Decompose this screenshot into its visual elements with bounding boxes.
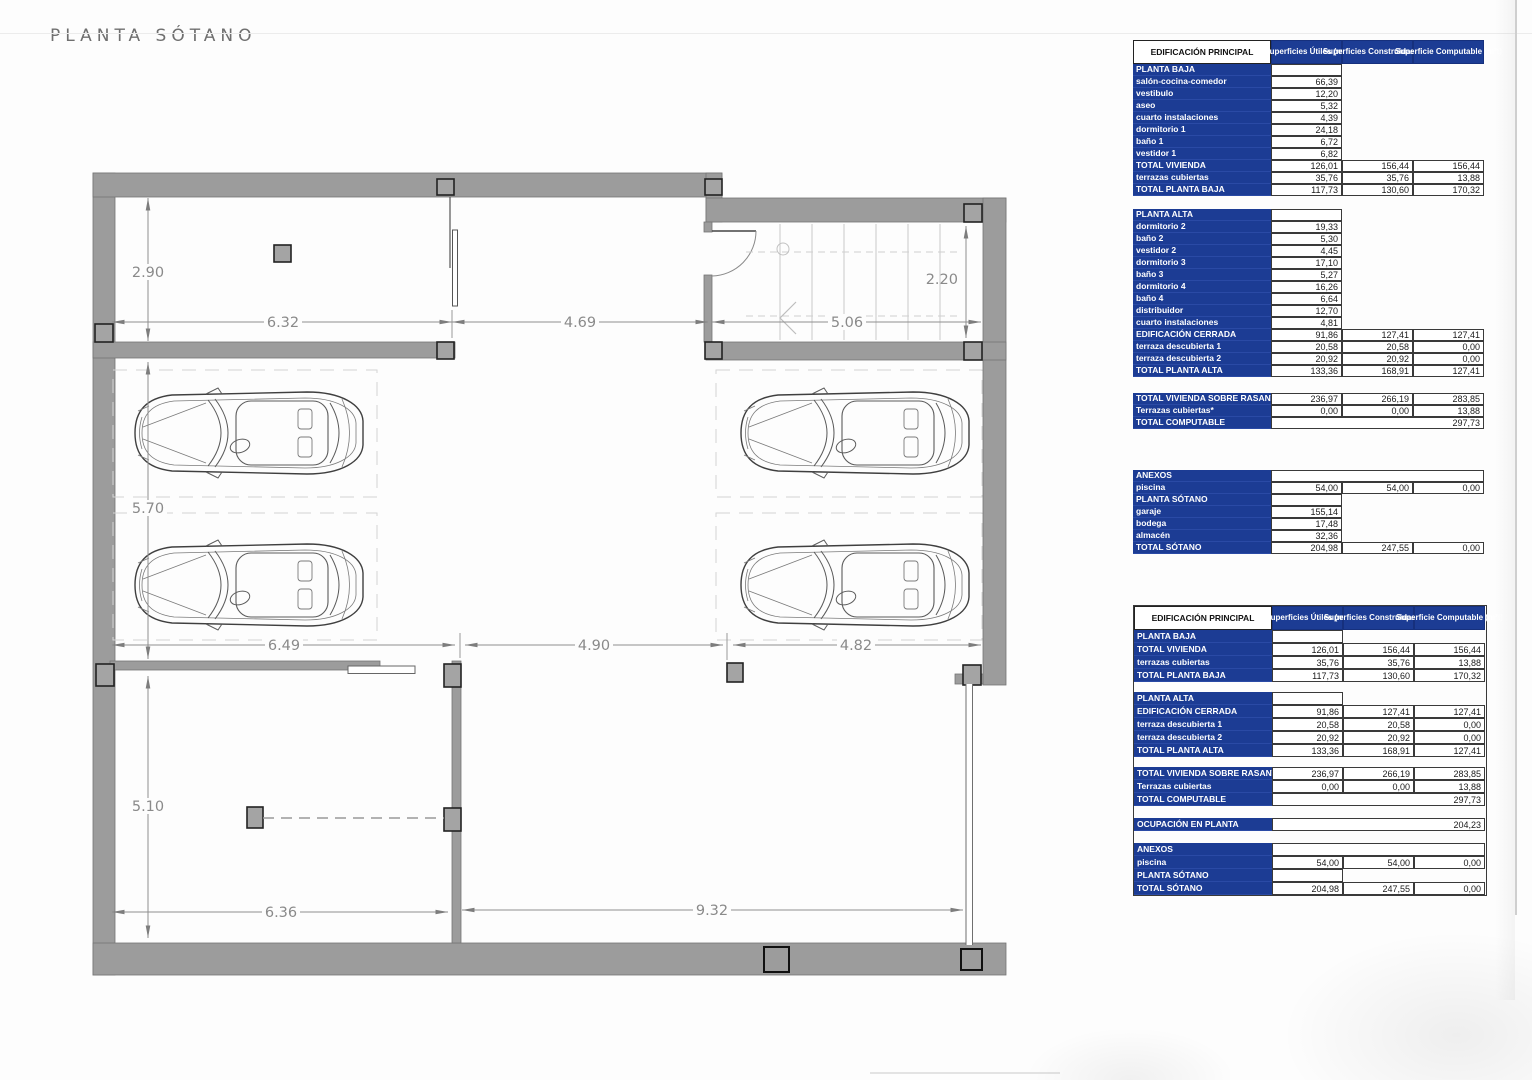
column [705, 342, 722, 359]
row-label: vestibulo [1133, 88, 1271, 100]
row-label: TOTAL SÓTANO [1133, 542, 1271, 554]
row-label: TOTAL PLANTA BAJA [1134, 669, 1272, 682]
table-cell: 20,92 [1272, 731, 1343, 744]
column [964, 342, 982, 360]
column [727, 663, 743, 682]
table-row: TOTAL PLANTA ALTA133,36168,91127,41 [1134, 744, 1486, 757]
car-icon [741, 540, 969, 630]
table-cell: 13,88 [1413, 172, 1484, 184]
row-label: dormitorio 1 [1133, 124, 1271, 136]
row-label: TOTAL PLANTA ALTA [1134, 744, 1272, 757]
row-label: TOTAL VIVIENDA SOBRE RASANTE [1133, 393, 1271, 405]
table-cell [1413, 317, 1484, 329]
row-label: PLANTA BAJA [1133, 64, 1271, 76]
row-label: TOTAL PLANTA ALTA [1133, 365, 1271, 377]
table-cell: 127,41 [1413, 365, 1484, 377]
dim-upper-height: 2.90 [129, 198, 167, 341]
table-cell: 13,88 [1413, 405, 1484, 417]
table-header-row: EDIFICACIÓN PRINCIPALSuperficies Útiles … [1134, 606, 1486, 630]
table-cell [1342, 257, 1413, 269]
table-cell: 5,27 [1271, 269, 1342, 281]
table-row: TOTAL VIVIENDA SOBRE RASANTE236,97266,19… [1134, 767, 1486, 780]
row-label: baño 1 [1133, 136, 1271, 148]
cars [135, 388, 969, 630]
table-cell [1342, 76, 1413, 88]
svg-text:4.69: 4.69 [564, 315, 596, 331]
table-cell [1272, 843, 1485, 856]
table-cell: 32,36 [1271, 530, 1342, 542]
dimension-ticks [452, 310, 727, 660]
column [705, 179, 722, 195]
table-row: baño 46,64 [1133, 293, 1485, 305]
column [96, 664, 114, 686]
svg-text:6.36: 6.36 [265, 905, 297, 921]
table-row: baño 16,72 [1133, 136, 1485, 148]
table-row: EDIFICACIÓN CERRADA91,86127,41127,41 [1133, 329, 1485, 341]
page-edge-line [1515, 0, 1517, 915]
svg-text:6.32: 6.32 [267, 315, 299, 331]
table-cell: 24,18 [1271, 124, 1342, 136]
table-cell: 54,00 [1343, 856, 1414, 869]
table-cell: 13,88 [1414, 780, 1485, 793]
table-cell: 130,60 [1343, 669, 1414, 682]
table-row: garaje155,14 [1133, 506, 1485, 518]
column [963, 665, 981, 685]
table-cell: 20,58 [1272, 718, 1343, 731]
table-cell: 5,32 [1271, 100, 1342, 112]
table-row: dormitorio 219,33 [1133, 221, 1485, 233]
row-label: PLANTA SÓTANO [1134, 869, 1272, 882]
table-cell [1342, 124, 1413, 136]
table-cell: 127,41 [1414, 705, 1485, 718]
table-row: terraza descubierta 220,9220,920,00 [1133, 353, 1485, 365]
table-cell: 17,10 [1271, 257, 1342, 269]
row-label: EDIFICACIÓN CERRADA [1133, 329, 1271, 341]
table-row: bodega17,48 [1133, 518, 1485, 530]
table-cell: 156,44 [1343, 643, 1414, 656]
dim-top-mid: 4.69 [452, 314, 708, 331]
row-label: dormitorio 2 [1133, 221, 1271, 233]
table-spacer [1133, 377, 1485, 393]
row-label: terrazas cubiertas [1133, 172, 1271, 184]
table-cell [1342, 112, 1413, 124]
table-row: PLANTA ALTA [1133, 209, 1485, 221]
table-row: cuarto instalaciones4,39 [1133, 112, 1485, 124]
row-label: terraza descubierta 1 [1133, 341, 1271, 353]
table-cell: 4,81 [1271, 317, 1342, 329]
table-cell [1342, 269, 1413, 281]
table-row: Terrazas cubiertas*0,000,0013,88 [1133, 405, 1485, 417]
table-cell [1272, 692, 1343, 705]
column [764, 947, 789, 972]
table-cell: 127,41 [1343, 705, 1414, 718]
svg-text:5.70: 5.70 [132, 501, 164, 517]
table-cell [1413, 124, 1484, 136]
table-row: vestidor 16,82 [1133, 148, 1485, 160]
table-cell [1271, 494, 1342, 506]
table-cell: 236,97 [1271, 393, 1342, 405]
row-label: ANEXOS [1133, 470, 1271, 482]
table-cell [1414, 692, 1485, 705]
table-row: PLANTA BAJA [1134, 630, 1486, 643]
row-label: aseo [1133, 100, 1271, 112]
stair-direction-arrow [780, 302, 796, 334]
row-label: baño 3 [1133, 269, 1271, 281]
row-label: dormitorio 3 [1133, 257, 1271, 269]
table-cell: 35,76 [1271, 172, 1342, 184]
row-label: cuarto instalaciones [1133, 317, 1271, 329]
table-cell: 20,58 [1343, 718, 1414, 731]
wall-garage-bottom [110, 661, 380, 670]
table-spacer [1134, 831, 1486, 843]
table-cell [1271, 64, 1342, 76]
table-row: OCUPACIÓN EN PLANTA204,23 [1134, 818, 1486, 831]
table-cell: 127,41 [1413, 329, 1484, 341]
dim-stair-height: 2.20 [926, 226, 966, 338]
table-cell: 126,01 [1272, 643, 1343, 656]
surface-summary-table: EDIFICACIÓN PRINCIPALSuperficies Útiles … [1133, 605, 1487, 896]
handrail-post [777, 243, 789, 255]
row-label: baño 2 [1133, 233, 1271, 245]
table-cell [1413, 88, 1484, 100]
table-cell: 54,00 [1271, 482, 1342, 494]
wall-right [983, 198, 1006, 685]
table-cell: 0,00 [1413, 482, 1484, 494]
table-row: terraza descubierta 220,9220,920,00 [1134, 731, 1486, 744]
table-cell [1342, 305, 1413, 317]
table-row: distribuidor12,70 [1133, 305, 1485, 317]
wall-top [93, 173, 722, 197]
column-header: Superficie Computable (m²t) [1414, 606, 1485, 630]
table-row: TOTAL SÓTANO204,98247,550,00 [1134, 882, 1486, 895]
row-label: vestidor 1 [1133, 148, 1271, 160]
surface-detail-table: EDIFICACIÓN PRINCIPALSuperficies Útiles … [1133, 40, 1485, 554]
table-cell: 66,39 [1271, 76, 1342, 88]
row-label: terraza descubierta 2 [1134, 731, 1272, 744]
column [437, 342, 454, 359]
row-label: TOTAL COMPUTABLE [1133, 417, 1271, 429]
wall-stair-bottom [706, 342, 1006, 360]
table-cell [1342, 494, 1413, 506]
table-cell [1413, 518, 1484, 530]
column-header: Superficie Computable (m²t) [1413, 40, 1484, 64]
table-cell: 236,97 [1272, 767, 1343, 780]
table-cell [1413, 136, 1484, 148]
table-cell [1342, 281, 1413, 293]
column [444, 664, 461, 687]
dim-bottom-left: 6.36 [112, 904, 448, 921]
table-row: TOTAL SÓTANO204,98247,550,00 [1133, 542, 1485, 554]
wall-stair-left-a [704, 222, 712, 232]
row-label: cuarto instalaciones [1133, 112, 1271, 124]
table-cell: 117,73 [1272, 669, 1343, 682]
table-cell: 13,88 [1414, 656, 1485, 669]
table-cell [1343, 630, 1414, 643]
table-cell [1413, 209, 1484, 221]
table-cell: 0,00 [1413, 542, 1484, 554]
table-cell [1342, 100, 1413, 112]
column [247, 807, 263, 828]
row-label: garaje [1133, 506, 1271, 518]
table-row: baño 35,27 [1133, 269, 1485, 281]
svg-text:2.20: 2.20 [926, 272, 958, 288]
table-cell: 283,85 [1414, 767, 1485, 780]
table-cell [1413, 257, 1484, 269]
table-cell [1413, 221, 1484, 233]
table-row: terrazas cubiertas35,7635,7613,88 [1133, 172, 1485, 184]
column [274, 245, 291, 262]
table-cell: 117,73 [1271, 184, 1342, 196]
table-row: terraza descubierta 120,5820,580,00 [1133, 341, 1485, 353]
table-cell [1413, 293, 1484, 305]
wall-left [93, 173, 115, 975]
table-cell: 19,33 [1271, 221, 1342, 233]
table-cell [1272, 869, 1343, 882]
row-label: EDIFICACIÓN CERRADA [1134, 705, 1272, 718]
row-label: terrazas cubiertas [1134, 656, 1272, 669]
table-cell: 54,00 [1272, 856, 1343, 869]
table-cell: 4,39 [1271, 112, 1342, 124]
scan-smudge [1030, 1030, 1230, 1080]
table-cell: 204,98 [1272, 882, 1343, 895]
row-label: PLANTA ALTA [1133, 209, 1271, 221]
row-label: TOTAL VIVIENDA [1133, 160, 1271, 172]
car-icon [741, 388, 969, 478]
row-label: OCUPACIÓN EN PLANTA [1134, 818, 1272, 831]
table-cell: 204,98 [1271, 542, 1342, 554]
table-cell: 0,00 [1343, 780, 1414, 793]
table-spacer [1133, 196, 1485, 209]
wall-lower-vertical [452, 661, 461, 943]
table-cell [1271, 209, 1342, 221]
row-label: TOTAL VIVIENDA [1134, 643, 1272, 656]
table-row: ANEXOS [1134, 843, 1486, 856]
table-cell [1343, 692, 1414, 705]
table-cell: 12,20 [1271, 88, 1342, 100]
table-cell [1342, 148, 1413, 160]
table-cell [1342, 136, 1413, 148]
table-cell: 283,85 [1413, 393, 1484, 405]
svg-text:5.06: 5.06 [831, 315, 863, 331]
table-cell [1413, 269, 1484, 281]
table-cell: 170,32 [1414, 669, 1485, 682]
row-label: terraza descubierta 2 [1133, 353, 1271, 365]
wall-mid-left [93, 342, 455, 358]
table-cell [1342, 506, 1413, 518]
table-cell: 155,14 [1271, 506, 1342, 518]
column [95, 324, 113, 342]
table-cell: 0,00 [1414, 856, 1485, 869]
table-cell: 17,48 [1271, 518, 1342, 530]
table-cell: 35,76 [1343, 656, 1414, 669]
table-row: piscina54,0054,000,00 [1134, 856, 1486, 869]
table-cell: 6,72 [1271, 136, 1342, 148]
table-spacer [1134, 757, 1486, 767]
table-cell: 5,30 [1271, 233, 1342, 245]
row-label: ANEXOS [1134, 843, 1272, 856]
table-cell [1342, 221, 1413, 233]
table-cell: 20,92 [1343, 731, 1414, 744]
table-row: terrazas cubiertas35,7635,7613,88 [1134, 656, 1486, 669]
table-row: vestidor 24,45 [1133, 245, 1485, 257]
table-cell: 168,91 [1343, 744, 1414, 757]
table-spacer [1134, 806, 1486, 818]
table-cell: 0,00 [1414, 731, 1485, 744]
table-cell [1413, 233, 1484, 245]
table-cell: 247,55 [1343, 882, 1414, 895]
row-label: almacén [1133, 530, 1271, 542]
table-cell: 35,76 [1342, 172, 1413, 184]
svg-text:4.90: 4.90 [578, 638, 610, 654]
table-cell [1413, 281, 1484, 293]
table-cell: 127,41 [1342, 329, 1413, 341]
car-icon [135, 540, 363, 630]
table-cell [1414, 630, 1485, 643]
table-cell: 127,41 [1414, 744, 1485, 757]
table-cell [1413, 64, 1484, 76]
table-cell: 156,44 [1414, 643, 1485, 656]
row-label: EDIFICACIÓN PRINCIPAL [1134, 606, 1272, 630]
row-label: Terrazas cubiertas [1134, 780, 1272, 793]
row-label: PLANTA SÓTANO [1133, 494, 1271, 506]
table-row: PLANTA SÓTANO [1134, 869, 1486, 882]
table-cell [1413, 100, 1484, 112]
table-row: PLANTA BAJA [1133, 64, 1485, 76]
table-cell: 16,26 [1271, 281, 1342, 293]
row-label: distribuidor [1133, 305, 1271, 317]
table-cell [1413, 305, 1484, 317]
wall-stair-top [706, 198, 1006, 222]
columns [95, 179, 982, 831]
table-cell: 0,00 [1342, 405, 1413, 417]
table-cell: 4,45 [1271, 245, 1342, 257]
sliding-door-upper [450, 197, 458, 306]
column [964, 204, 982, 222]
scan-smudge [1280, 930, 1532, 1080]
table-cell: 6,64 [1271, 293, 1342, 305]
table-cell [1342, 317, 1413, 329]
table-cell [1342, 88, 1413, 100]
table-cell: 156,44 [1413, 160, 1484, 172]
table-row: dormitorio 416,26 [1133, 281, 1485, 293]
table-cell: 0,00 [1413, 341, 1484, 353]
row-label: piscina [1134, 856, 1272, 869]
window-lower-right [966, 684, 974, 945]
svg-text:5.10: 5.10 [132, 799, 164, 815]
car-icon [135, 388, 363, 478]
table-cell [1413, 112, 1484, 124]
row-label: TOTAL VIVIENDA SOBRE RASANTE [1134, 767, 1272, 780]
table-row: Terrazas cubiertas0,000,0013,88 [1134, 780, 1486, 793]
page: PLANTA SÓTANO [0, 0, 1532, 1080]
row-label: salón-cocina-comedor [1133, 76, 1271, 88]
table-cell: 0,00 [1414, 882, 1485, 895]
table-cell: 133,36 [1271, 365, 1342, 377]
table-cell: 266,19 [1342, 393, 1413, 405]
table-cell: 20,58 [1342, 341, 1413, 353]
table-row: TOTAL VIVIENDA126,01156,44156,44 [1134, 643, 1486, 656]
row-label: PLANTA ALTA [1134, 692, 1272, 705]
row-label: TOTAL SÓTANO [1134, 882, 1272, 895]
table-cell: 247,55 [1342, 542, 1413, 554]
column [444, 808, 461, 831]
table-row: TOTAL COMPUTABLE297,73 [1133, 417, 1485, 429]
wall-bottom [93, 943, 1006, 975]
table-row: TOTAL PLANTA BAJA117,73130,60170,32 [1134, 669, 1486, 682]
page-edge-gradient [1495, 0, 1515, 1000]
table-row: vestibulo12,20 [1133, 88, 1485, 100]
table-row: TOTAL VIVIENDA126,01156,44156,44 [1133, 160, 1485, 172]
table-cell: 297,73 [1271, 417, 1484, 429]
table-cell: 0,00 [1414, 718, 1485, 731]
table-cell: 35,76 [1272, 656, 1343, 669]
table-row: salón-cocina-comedor66,39 [1133, 76, 1485, 88]
table-row: TOTAL COMPUTABLE297,73 [1134, 793, 1486, 806]
table-cell: 0,00 [1272, 780, 1343, 793]
row-label: Terrazas cubiertas* [1133, 405, 1271, 417]
wall-stair-left-b [704, 275, 712, 342]
dim-mid-center: 4.90 [465, 637, 723, 654]
table-cell: 20,92 [1342, 353, 1413, 365]
table-cell: 20,92 [1271, 353, 1342, 365]
table-row: TOTAL PLANTA ALTA133,36168,91127,41 [1133, 365, 1485, 377]
table-cell: 0,00 [1413, 353, 1484, 365]
table-row: PLANTA SÓTANO [1133, 494, 1485, 506]
table-row: dormitorio 124,18 [1133, 124, 1485, 136]
table-cell: 170,32 [1413, 184, 1484, 196]
row-label: baño 4 [1133, 293, 1271, 305]
table-cell: 133,36 [1272, 744, 1343, 757]
sliding-door-garage [348, 666, 415, 674]
table-cell [1271, 470, 1484, 482]
row-label: terraza descubierta 1 [1134, 718, 1272, 731]
row-label: dormitorio 4 [1133, 281, 1271, 293]
table-cell [1414, 869, 1485, 882]
table-row: PLANTA ALTA [1134, 692, 1486, 705]
dim-top-right: 5.06 [712, 314, 981, 331]
table-cell [1342, 209, 1413, 221]
svg-text:6.49: 6.49 [268, 638, 300, 654]
table-row: EDIFICACIÓN CERRADA91,86127,41127,41 [1134, 705, 1486, 718]
table-row: dormitorio 317,10 [1133, 257, 1485, 269]
table-cell: 91,86 [1271, 329, 1342, 341]
table-row: almacén32,36 [1133, 530, 1485, 542]
table-cell: 0,00 [1271, 405, 1342, 417]
table-cell: 266,19 [1343, 767, 1414, 780]
column [961, 949, 982, 970]
stair-door [712, 231, 756, 276]
table-cell: 20,58 [1271, 341, 1342, 353]
dim-lower-height: 5.10 [129, 676, 167, 938]
table-cell [1413, 245, 1484, 257]
row-label: EDIFICACIÓN PRINCIPAL [1133, 40, 1271, 64]
svg-text:2.90: 2.90 [132, 265, 164, 281]
table-cell [1342, 233, 1413, 245]
table-cell [1342, 530, 1413, 542]
table-cell: 91,86 [1272, 705, 1343, 718]
table-row: TOTAL VIVIENDA SOBRE RASANTE236,97266,19… [1133, 393, 1485, 405]
table-cell [1342, 518, 1413, 530]
table-row: aseo5,32 [1133, 100, 1485, 112]
svg-text:9.32: 9.32 [696, 903, 728, 919]
table-cell [1413, 506, 1484, 518]
table-row: ANEXOS [1133, 470, 1485, 482]
dim-bottom-right: 9.32 [462, 902, 963, 919]
table-row: cuarto instalaciones4,81 [1133, 317, 1485, 329]
table-cell: 204,23 [1272, 818, 1485, 831]
table-cell [1342, 64, 1413, 76]
table-cell [1342, 245, 1413, 257]
